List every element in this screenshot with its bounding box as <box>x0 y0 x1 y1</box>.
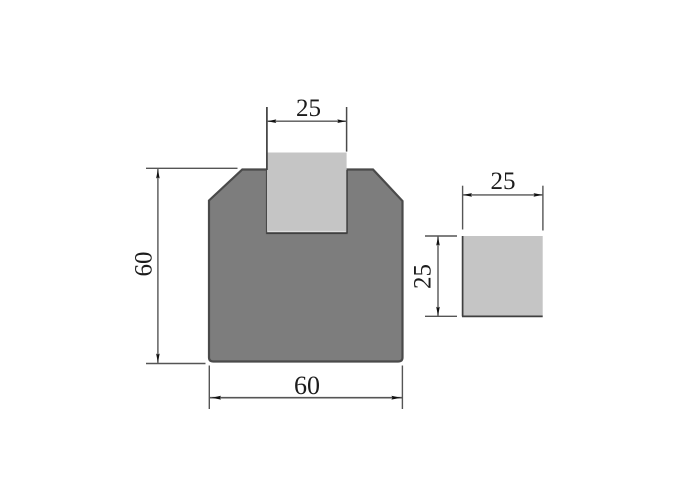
svg-text:25: 25 <box>491 168 516 195</box>
svg-text:25: 25 <box>410 264 437 289</box>
svg-text:60: 60 <box>294 371 320 400</box>
svg-text:60: 60 <box>131 252 158 277</box>
svg-text:25: 25 <box>296 95 321 122</box>
